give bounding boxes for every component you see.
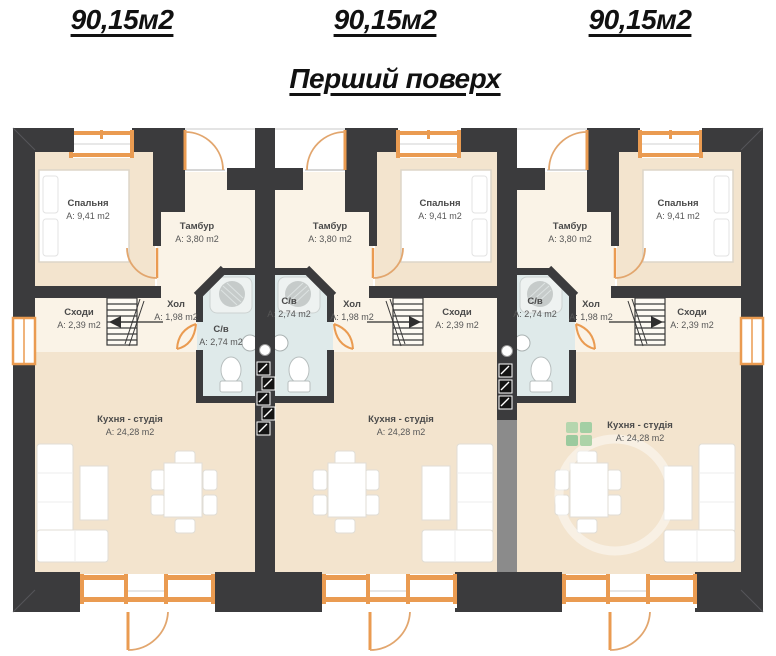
room-name: Тамбур <box>548 220 592 233</box>
room-name: Хол <box>154 298 198 311</box>
floor-plan-page: 90,15м2 90,15м2 90,15м2 Перший поверх <box>0 0 776 656</box>
room-name: Спальня <box>656 197 700 210</box>
room-label-stairs-unit-1: СходиA: 2,39 m2 <box>57 306 101 332</box>
room-area: A: 3,80 m2 <box>308 233 352 246</box>
unit-3-graphics <box>514 128 741 574</box>
room-label-vestibule-unit-2: ТамбурA: 3,80 m2 <box>308 220 352 246</box>
room-area: A: 24,28 m2 <box>368 426 434 439</box>
room-name: Кухня - студія <box>607 419 673 432</box>
party-wall-lower <box>497 420 517 572</box>
room-name: С/в <box>513 295 557 308</box>
room-area: A: 2,39 m2 <box>670 319 714 332</box>
room-label-stairs-unit-2: СходиA: 2,39 m2 <box>435 306 479 332</box>
room-area: A: 1,98 m2 <box>569 311 613 324</box>
room-name: Спальня <box>418 197 462 210</box>
room-area: A: 2,39 m2 <box>57 319 101 332</box>
room-label-bedroom-unit-3: СпальняA: 9,41 m2 <box>656 197 700 223</box>
room-area: A: 24,28 m2 <box>607 432 673 445</box>
room-area: A: 1,98 m2 <box>330 311 374 324</box>
unit-1-graphics <box>31 128 258 574</box>
room-area: A: 2,74 m2 <box>513 308 557 321</box>
room-name: Хол <box>330 298 374 311</box>
room-area: A: 9,41 m2 <box>418 210 462 223</box>
room-area: A: 9,41 m2 <box>66 210 110 223</box>
room-name: Спальня <box>66 197 110 210</box>
room-label-kitchen-unit-2: Кухня - студіяA: 24,28 m2 <box>368 413 434 439</box>
room-label-hall-unit-3: ХолA: 1,98 m2 <box>569 298 613 324</box>
room-name: Сходи <box>435 306 479 319</box>
room-area: A: 2,74 m2 <box>267 308 311 321</box>
room-name: Кухня - студія <box>368 413 434 426</box>
room-label-stairs-unit-3: СходиA: 2,39 m2 <box>670 306 714 332</box>
room-area: A: 9,41 m2 <box>656 210 700 223</box>
room-name: Тамбур <box>175 220 219 233</box>
terrace-doors <box>80 574 697 650</box>
floor-plan-canvas <box>0 0 776 656</box>
room-label-bathroom-unit-2: С/вA: 2,74 m2 <box>267 295 311 321</box>
unit-2-graphics <box>272 128 499 574</box>
room-label-bathroom-unit-1: С/вA: 2,74 m2 <box>199 323 243 349</box>
room-name: С/в <box>199 323 243 336</box>
room-area: A: 2,74 m2 <box>199 336 243 349</box>
room-label-kitchen-unit-1: Кухня - студіяA: 24,28 m2 <box>97 413 163 439</box>
room-label-kitchen-unit-3: Кухня - студіяA: 24,28 m2 <box>607 419 673 445</box>
room-name: Кухня - студія <box>97 413 163 426</box>
room-name: Сходи <box>57 306 101 319</box>
room-area: A: 24,28 m2 <box>97 426 163 439</box>
room-area: A: 3,80 m2 <box>175 233 219 246</box>
room-area: A: 2,39 m2 <box>435 319 479 332</box>
room-label-bathroom-unit-3: С/вA: 2,74 m2 <box>513 295 557 321</box>
room-name: Тамбур <box>308 220 352 233</box>
room-area: A: 3,80 m2 <box>548 233 592 246</box>
room-label-bedroom-unit-2: СпальняA: 9,41 m2 <box>418 197 462 223</box>
room-name: С/в <box>267 295 311 308</box>
room-name: Сходи <box>670 306 714 319</box>
room-label-hall-unit-1: ХолA: 1,98 m2 <box>154 298 198 324</box>
room-label-vestibule-unit-3: ТамбурA: 3,80 m2 <box>548 220 592 246</box>
room-label-vestibule-unit-1: ТамбурA: 3,80 m2 <box>175 220 219 246</box>
room-name: Хол <box>569 298 613 311</box>
room-label-bedroom-unit-1: СпальняA: 9,41 m2 <box>66 197 110 223</box>
room-label-hall-unit-2: ХолA: 1,98 m2 <box>330 298 374 324</box>
room-area: A: 1,98 m2 <box>154 311 198 324</box>
